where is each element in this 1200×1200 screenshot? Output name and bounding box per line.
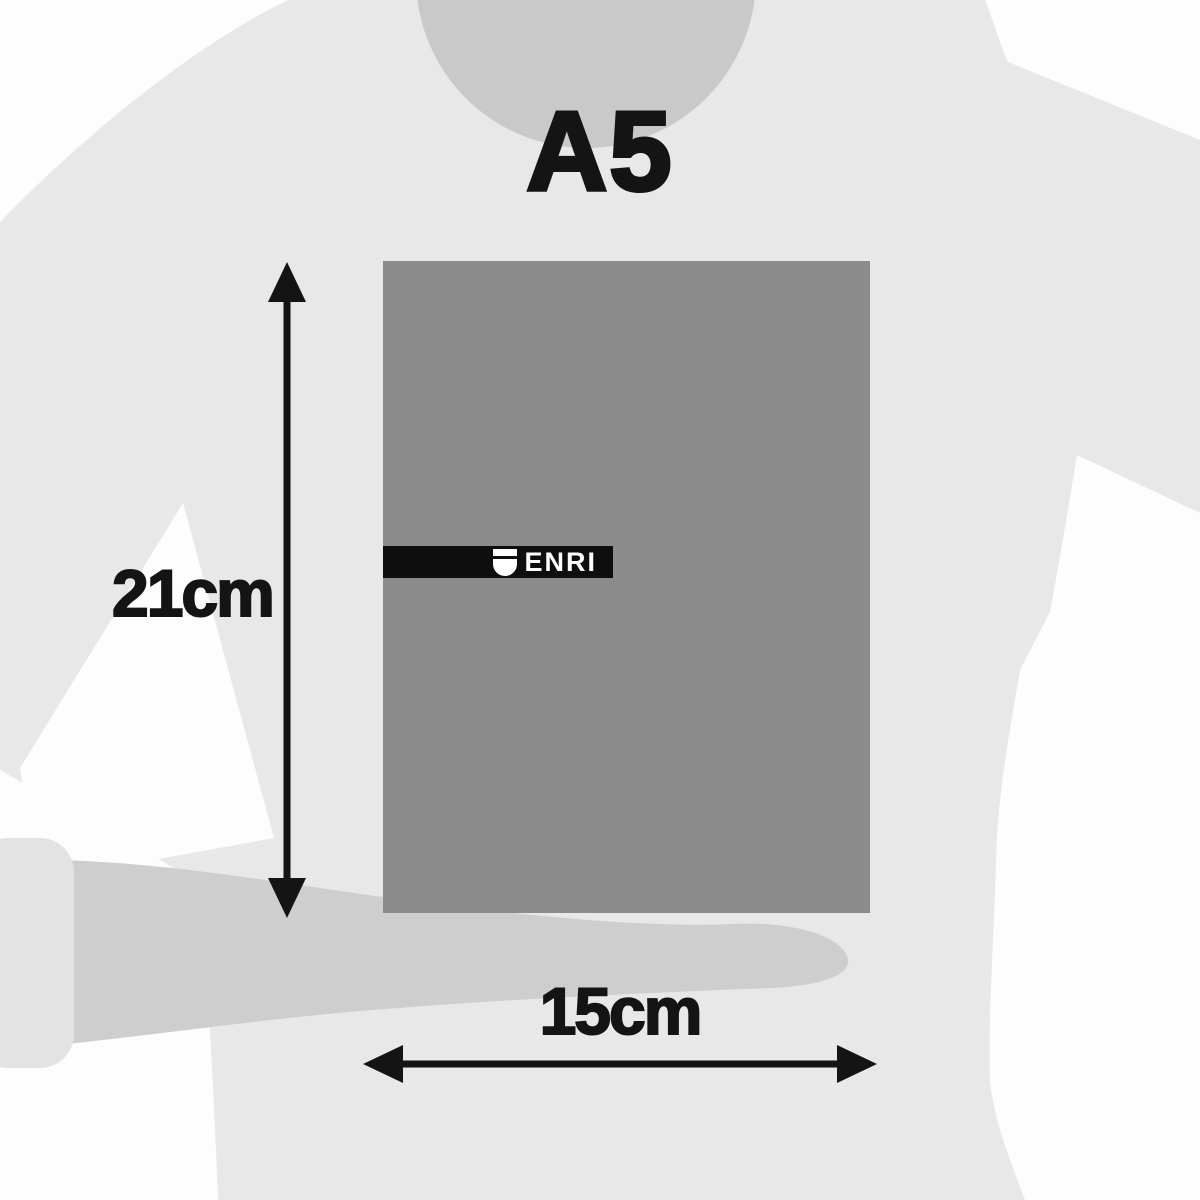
product-dimension-image: A5 ENRI 21cm 15cm <box>0 0 1200 1200</box>
arrow-up-head <box>268 262 306 302</box>
width-dimension-arrow <box>363 1045 877 1083</box>
width-dimension-label: 15cm <box>420 978 820 1044</box>
arrow-left-head <box>363 1045 403 1083</box>
arrow-down-head <box>268 878 306 918</box>
height-dimension-label: 21cm <box>112 560 272 626</box>
arrow-right-head <box>837 1045 877 1083</box>
height-dimension-arrow <box>268 262 306 918</box>
